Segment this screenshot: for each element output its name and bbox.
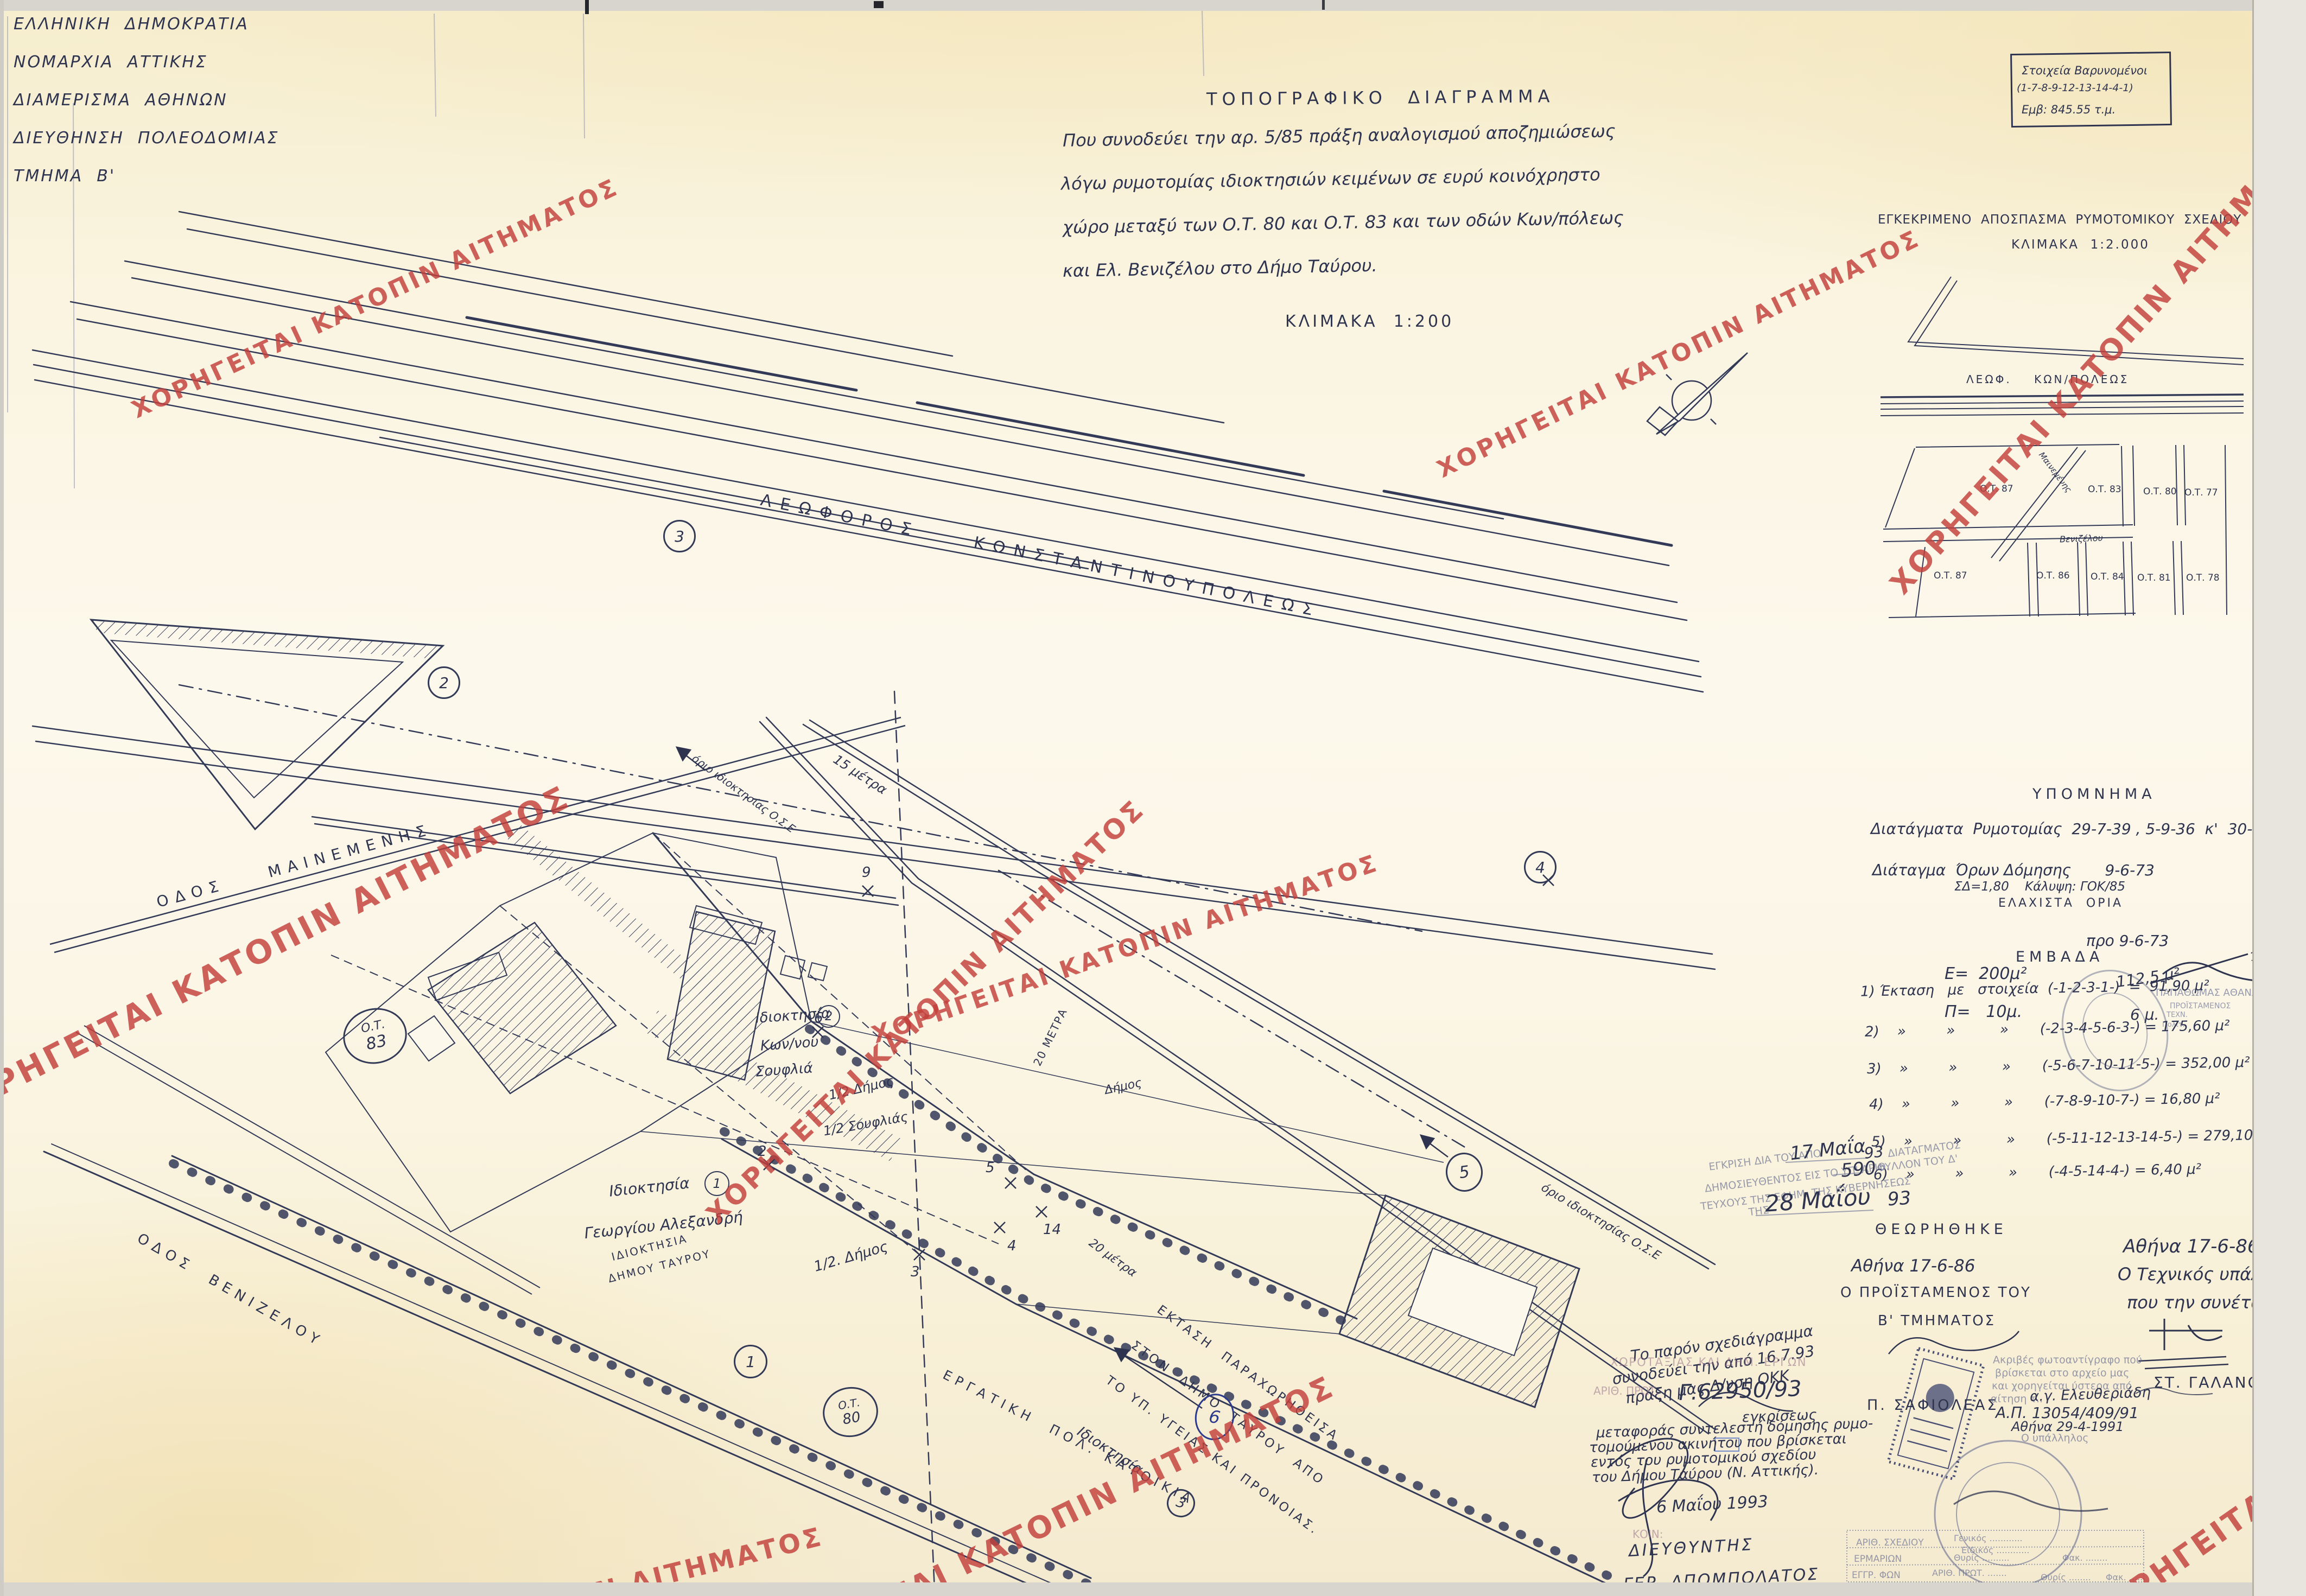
scan-artifact-1 [585,0,589,14]
inset-block-ot87-bottom: Ο.Τ. 87 [1934,571,1967,582]
inset-scale: ΚΛΙΜΑΚΑ 1:2.000 [2011,238,2150,252]
formbox-r2a: ΕΡΜΑΡΙΩΝ [1854,1554,1902,1565]
inset-block-ot86: Ο.Τ. 86 [2036,571,2070,582]
agency-line-2: ΝΟΜΑΡΧΙΑ ΑΤΤΙΚΗΣ [14,53,208,72]
legend-sd-coverage: ΣΔ=1,80 Κάλυψη: ΓΟΚ/85 [1954,880,2125,894]
drawing-title: ΤΟΠΟΓΡΑΦΙΚΟ ΔΙΑΓΡΑΜΜΑ [1206,86,1555,109]
inset-block-ot83: Ο.Τ. 83 [2088,485,2121,495]
point-3: 3 [911,1264,920,1281]
purple-stamp-line-2: ΑΡΙΘ. ΠΡΩΤ. [1593,1385,1659,1397]
scan-artifact-2 [874,1,884,8]
legend-decree-building: Διάταγμα Όρων Δόμησης 9-6-73 [1872,862,2155,879]
point-9: 9 [862,865,871,881]
formbox-r3a: ΕΓΓΡ. ΦΩΝ [1852,1570,1901,1581]
approval-date-2-year: 93 [1887,1188,1912,1211]
hatched-building [1339,1196,1579,1407]
legend-minima-heading: ΕΛΑΧΙΣΤΑ ΟΡΙΑ [1998,896,2123,910]
legend-stamp-role: ΠΡΟΪΣΤΑΜΕΝΟΣ [2170,1002,2231,1010]
scanned-topographic-diagram: ΕΛΛΗΝΙΚΗ ΔΗΜΟΚΡΑΤΙΑ ΝΟΜΑΡΧΙΑ ΑΤΤΙΚΗΣ ΔΙΑ… [0,0,2306,1596]
drawing-scale: ΚΛΙΜΑΚΑ 1:200 [1285,313,1454,332]
purple-stamp-line-1: ΧΩΡΟΤΑΞΙΑΣ ΚΑΙ ΔΗΜ. ΕΡΓΩΝ [1610,1356,1807,1369]
legend-pre-1973: προ 9-6-73 [2086,932,2169,950]
tech-date: Αθήνα 17-6-86 [2123,1236,2259,1257]
certified-heading: ΘΕΩΡΗΘΗΚΕ [1875,1221,2008,1238]
point-4: 4 [1007,1238,1017,1255]
certified-date: Αθήνα 17-6-86 [1851,1257,1975,1276]
legend-decrees: Διατάγματα Ρυμοτομίας 29-7-39 , 5-9-36 κ… [1871,821,2287,838]
copy-role: Ο υπάλληλος [2021,1433,2089,1445]
agency-line-4: ΔΙΕΥΘΗΝΣΗ ΠΟΛΕΟΔΟΜΙΑΣ [14,129,279,148]
purple-stamp-line-3: ΚΟΙΝ: [1632,1528,1663,1541]
formbox-r3b: ΑΡΙΘ. ΠΡΩΤ. ....... [1932,1568,2007,1578]
scan-edge-right [2252,0,2306,1596]
inset-block-ot77: Ο.Τ. 77 [2184,488,2218,499]
point-5: 5 [986,1160,995,1177]
certified-name: Π. ΣΑΦΙΟΛΕΑΣ [1867,1397,1999,1414]
section-circle-2: 2 [428,666,460,699]
scan-edge-top [0,0,2306,11]
inset-block-ot78: Ο.Τ. 78 [2186,573,2220,584]
formbox-r2c: Φακ. ........ [2062,1553,2107,1563]
copy-stamp-line-1: Ακριβές φωτοαντίγραφο πού [1993,1355,2142,1366]
scan-artifact-3 [1322,0,1325,10]
approval-gazette-number: 590 [1840,1158,1877,1182]
formbox-r2b: Θυρίς .......... [1954,1553,2010,1563]
agency-line-5: ΤΜΗΜΑ Β' [14,167,116,186]
copy-stamp-line-2: βρίσκεται στο αρχείο μας [1995,1368,2129,1379]
certified-role-1: Ο ΠΡΟΪΣΤΑΜΕΝΟΣ ΤΟΥ [1840,1285,2031,1301]
burden-line-2: (1-7-8-9-12-13-14-4-1) [2017,82,2133,94]
point-14: 14 [1043,1222,1061,1238]
round-stamp-bottom [1935,1441,2081,1587]
agency-line-1: ΕΛΛΗΝΙΚΗ ΔΗΜΟΚΡΑΤΙΑ [14,15,249,34]
burden-line-3: Εμβ: 845.55 τ.μ. [2022,103,2116,116]
areas-heading: ΕΜΒΑΔΑ [2016,949,2104,965]
formbox-r1b: Γενικός ............ [1954,1534,2023,1543]
scan-edge-left [0,0,4,1596]
inset-block-ot80: Ο.Τ. 80 [2143,487,2177,498]
transfer-number: Γ.62950/93 [1678,1376,1802,1406]
certified-role-2: Β' ΤΜΗΜΑΤΟΣ [1878,1313,1996,1330]
legend-frontage-min: Π= 10μ. [1945,1003,2022,1022]
inset-street-venizelou: Βενιζέλου [2060,533,2103,545]
inset-block-ot81: Ο.Τ. 81 [2137,573,2171,584]
legend-heading: ΥΠΟΜΝΗΜΑ [2032,786,2156,803]
section-circle-1: 1 [734,1345,767,1378]
section-circle-3: 3 [663,520,696,552]
formbox-r3c: Θυρίς ........ [2041,1573,2091,1582]
agency-line-3: ΔΙΑΜΕΡΙΣΜΑ ΑΘΗΝΩΝ [14,91,228,110]
inset-block-ot84: Ο.Τ. 84 [2091,572,2124,583]
section-circle-4: 4 [1524,851,1557,883]
point-6: 6 [814,1010,823,1027]
inset-title: ΕΓΚΕΚΡΙΜΕΝΟ ΑΠΟΣΠΑΣΜΑ ΡΥΜΟΤΟΜΙΚΟΥ ΣΧΕΔΙΟ… [1878,213,2241,227]
burden-line-1: Στοιχεία Βαρυνομένοι [2022,64,2148,77]
formbox-r1a: ΑΡΙΘ. ΣΧΕΔΙΟΥ [1856,1538,1924,1549]
scan-edge-bottom [0,1582,2306,1596]
